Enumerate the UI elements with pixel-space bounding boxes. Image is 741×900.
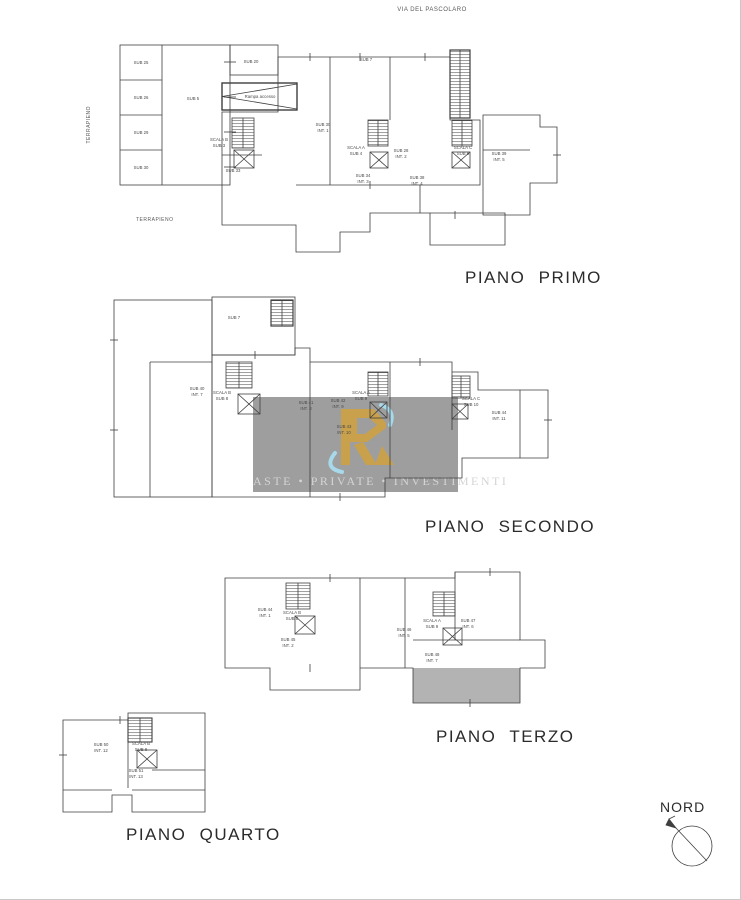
terrapieno-label-horizontal: TERRAPIENO	[136, 217, 174, 223]
terrapieno-label-vertical: TERRAPIENO	[86, 106, 92, 144]
room-label: SUB 7	[360, 57, 373, 62]
room-label: SUB 34	[356, 173, 371, 178]
room-label: INT. 1	[317, 128, 329, 133]
room-label: SCALA C	[454, 145, 472, 150]
room-label: SUB 44	[258, 607, 273, 612]
room-label: SUB 29	[134, 130, 149, 135]
room-label: SUB 20	[244, 59, 259, 64]
room-label: INT. 2	[282, 643, 294, 648]
room-label: SUB 5	[187, 96, 200, 101]
room-label: INT. 1	[259, 613, 271, 618]
room-label: INT. 8	[300, 406, 312, 411]
room-label: INT. 5	[493, 157, 505, 162]
room-label: SUB 4	[350, 151, 363, 156]
room-label: INT. 9	[332, 404, 344, 409]
room-label: SUB 26	[134, 95, 149, 100]
room-label: INT. 7	[426, 658, 438, 663]
room-label: SUB 30	[134, 165, 149, 170]
room-label: SUB 28	[394, 148, 409, 153]
room-label: SUB 46	[397, 627, 412, 632]
room-label: SCALA A	[347, 145, 365, 150]
caption-piano-quarto: PIANO QUARTO	[126, 825, 281, 845]
caption-piano-terzo: PIANO TERZO	[436, 727, 574, 747]
room-label: SCALA B	[210, 137, 228, 142]
room-label: INT. 11	[492, 416, 506, 421]
room-label: SUB 30	[316, 122, 331, 127]
room-label: INT. 12	[94, 748, 108, 753]
room-label: SUB 33	[226, 168, 241, 173]
room-label: SUB 50	[94, 742, 109, 747]
room-label: SCALA C	[462, 396, 480, 401]
room-label: SUB 41	[299, 400, 314, 405]
room-label: SUB 51	[129, 768, 144, 773]
room-label: SUB 38	[410, 175, 425, 180]
room-label: SCALA B	[132, 741, 150, 746]
room-label: INT. 13	[129, 774, 143, 779]
room-label: SUB 8	[216, 396, 229, 401]
street-label: VIA DEL PASCOLARO	[352, 7, 512, 13]
room-label: SCALA A	[423, 618, 441, 623]
room-label: SUB 47	[461, 618, 476, 623]
room-label: SUB 44	[492, 410, 507, 415]
room-label: SCALA A	[352, 390, 370, 395]
plan-piano-quarto	[59, 713, 205, 812]
compass-icon	[666, 816, 712, 866]
room-label: INT. 2	[395, 154, 407, 159]
plan-piano-primo	[120, 45, 561, 252]
room-label: Rampa accesso	[245, 94, 276, 99]
room-label: SUB 3	[213, 143, 226, 148]
room-label: SUB 8	[135, 747, 148, 752]
room-label: INT. 3	[357, 179, 369, 184]
drawing-page: ASTE • PRIVATE • INVESTIMENTI	[0, 0, 741, 900]
room-label: SUB 7	[228, 315, 241, 320]
room-label: SUB 40	[190, 386, 205, 391]
room-label: SUB 39	[492, 151, 507, 156]
caption-piano-secondo: PIANO SECONDO	[425, 517, 595, 537]
room-label: SUB 9	[426, 624, 439, 629]
room-label: SCALA B	[283, 610, 301, 615]
room-label: SUB 25	[134, 60, 149, 65]
room-label: SUB 45	[281, 637, 296, 642]
room-label: INT. 4	[411, 181, 423, 186]
room-label: INT. 5	[398, 633, 410, 638]
room-label: INT. 7	[191, 392, 203, 397]
room-label: SUB 9	[355, 396, 368, 401]
highlighted-unit-fill	[413, 668, 520, 703]
room-label: INT. 6	[462, 624, 474, 629]
room-label: SUB 8	[286, 616, 299, 621]
room-label: SUB 42	[331, 398, 346, 403]
room-label: SUB 43	[337, 424, 352, 429]
caption-piano-primo: PIANO PRIMO	[465, 268, 602, 288]
room-label: SUB 48	[425, 652, 440, 657]
floor-plan-drawing: SUB 25SUB 26SUB 29SUB 30SUB 5SUB 20Rampa…	[0, 0, 741, 900]
nord-label: NORD	[660, 799, 705, 815]
room-label: SUB 6	[457, 151, 470, 156]
room-label: SCALA B	[213, 390, 231, 395]
room-label: INT. 10	[337, 430, 351, 435]
room-label: SUB 10	[464, 402, 479, 407]
